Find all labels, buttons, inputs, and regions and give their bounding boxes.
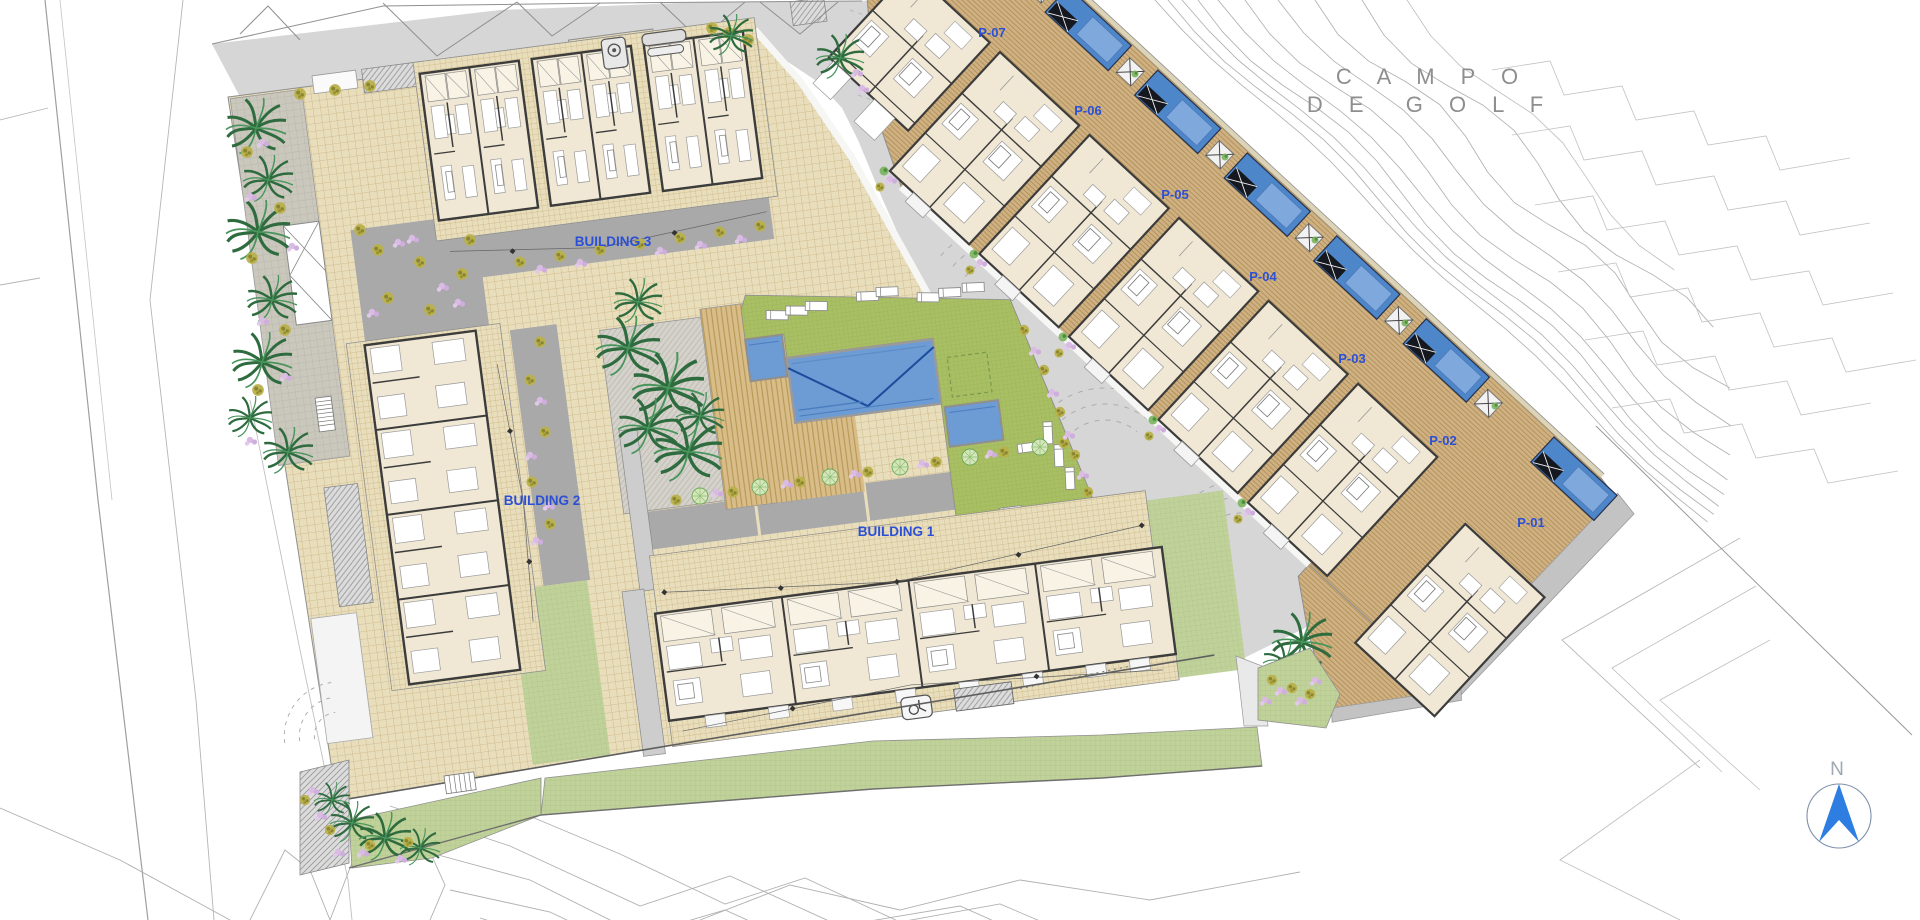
svg-text:N: N <box>1830 759 1844 780</box>
svg-text:BUILDING 3: BUILDING 3 <box>575 234 652 249</box>
svg-text:BUILDING 1: BUILDING 1 <box>858 524 935 539</box>
svg-text:P-06: P-06 <box>1074 103 1101 118</box>
svg-text:P-04: P-04 <box>1249 269 1277 284</box>
svg-text:D E G O L F: D E G O L F <box>1307 92 1553 117</box>
svg-text:P-03: P-03 <box>1338 351 1365 366</box>
svg-text:P-05: P-05 <box>1161 187 1188 202</box>
svg-text:P-07: P-07 <box>978 25 1005 40</box>
svg-text:P-02: P-02 <box>1429 433 1456 448</box>
svg-text:BUILDING 2: BUILDING 2 <box>504 493 581 508</box>
svg-text:P-01: P-01 <box>1517 515 1544 530</box>
svg-text:C A M P O: C A M P O <box>1336 64 1528 89</box>
